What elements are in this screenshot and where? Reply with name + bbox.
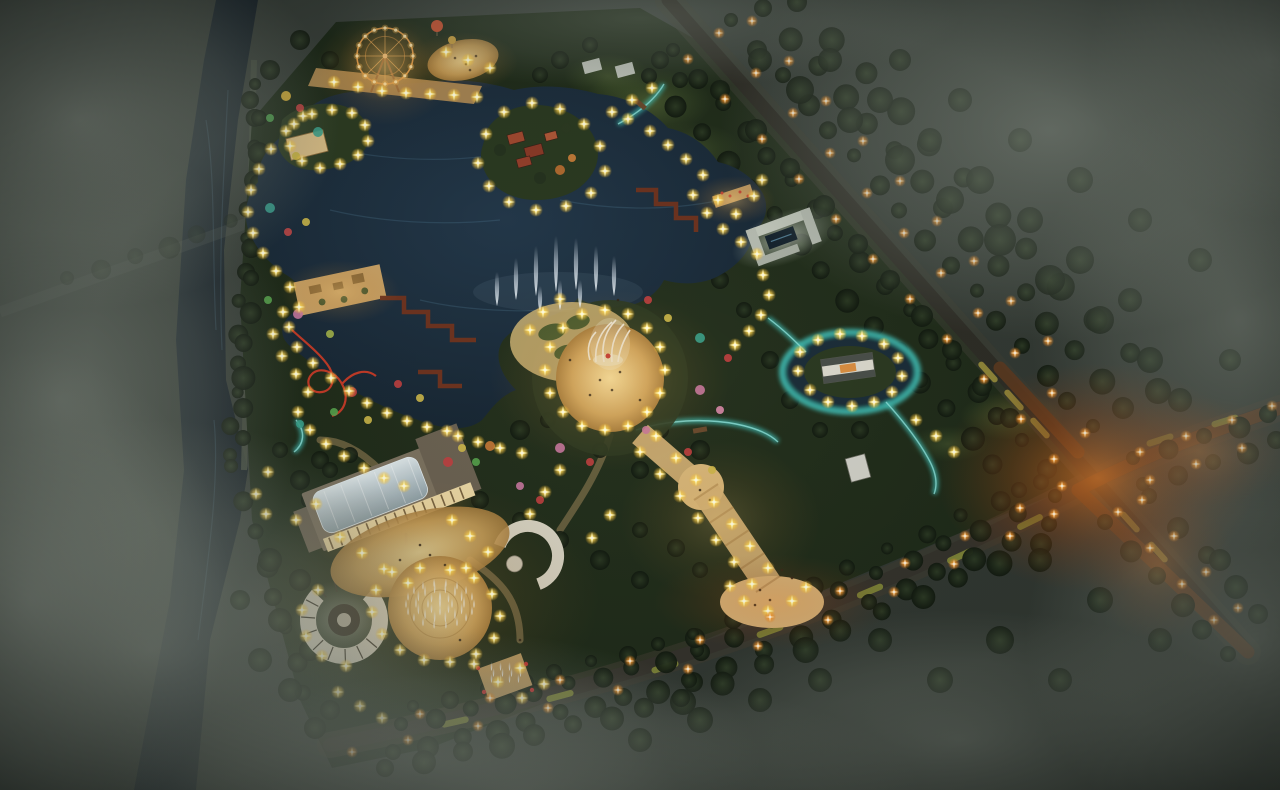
scene-svg [0,0,1280,790]
park-night-rendering [0,0,1280,790]
vignette [0,0,1280,790]
